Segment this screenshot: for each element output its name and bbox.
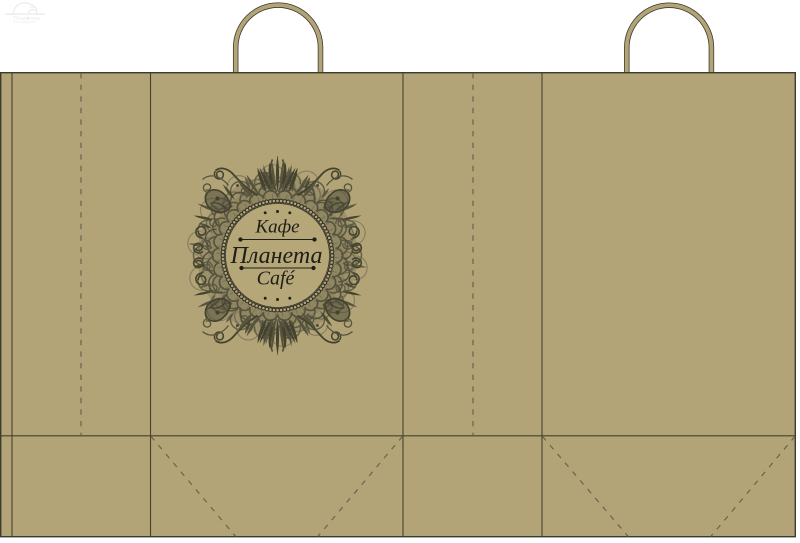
svg-text:Планелла: Планелла (14, 16, 41, 22)
svg-text:Кафе: Кафе (254, 217, 299, 238)
svg-text:Café: Café (257, 268, 296, 290)
svg-text:Планета: Планета (230, 243, 323, 269)
